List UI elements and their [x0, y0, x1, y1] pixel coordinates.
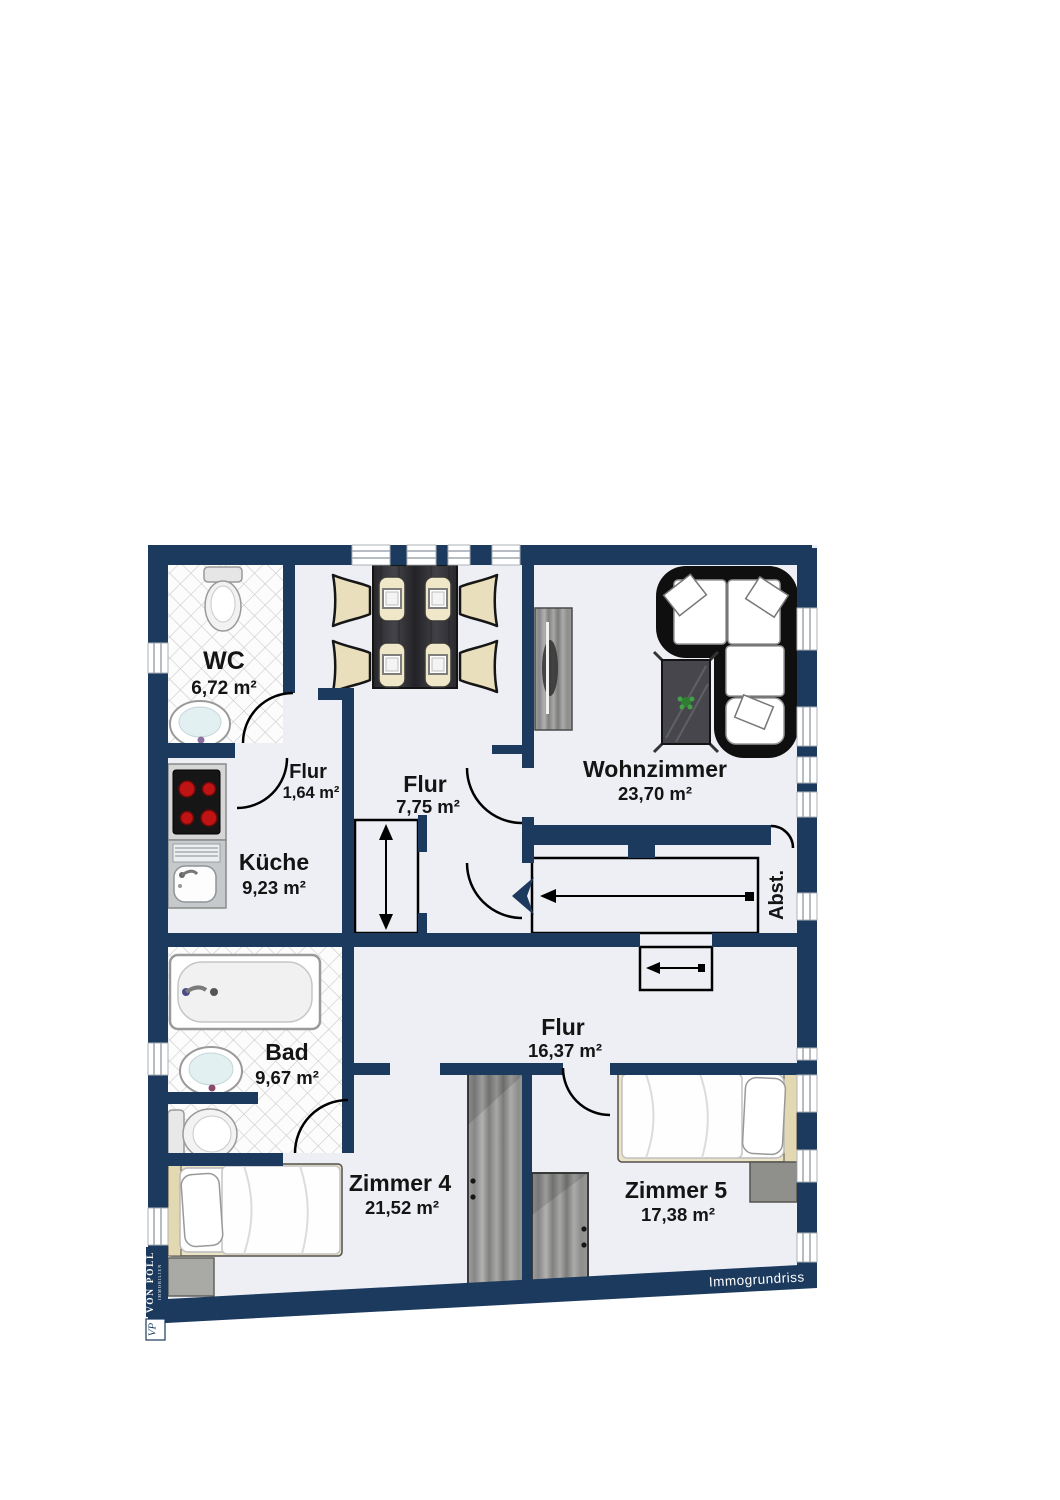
window-right-5 — [797, 1048, 817, 1060]
kitchen-stove — [168, 764, 226, 840]
floorplan-page: WC 6,72 m² Flur 1,64 m² Flur 7,75 m² Woh… — [0, 0, 1060, 1500]
stairs-lower-steps — [640, 947, 712, 990]
svg-text:Abst.: Abst. — [766, 870, 788, 920]
svg-text:1,64 m²: 1,64 m² — [283, 784, 340, 802]
svg-text:7,75 m²: 7,75 m² — [396, 796, 460, 817]
svg-text:Flur: Flur — [541, 1014, 584, 1040]
stairs-upper — [355, 820, 418, 933]
window-top-3 — [448, 545, 470, 565]
coffee-table — [654, 652, 718, 752]
wc-toilet — [204, 567, 242, 631]
kitchen-sink-unit — [168, 840, 226, 908]
window-left-wc — [148, 643, 168, 673]
window-right-7 — [797, 1150, 817, 1182]
window-right-3 — [797, 757, 817, 783]
svg-text:Wohnzimmer: Wohnzimmer — [583, 756, 727, 782]
zimmer5-nightstand — [750, 1162, 797, 1202]
room-label-zimmer4: Zimmer 4 21,52 m² — [349, 1170, 451, 1218]
svg-text:6,72 m²: 6,72 m² — [191, 678, 256, 699]
floorplan-svg: WC 6,72 m² Flur 1,64 m² Flur 7,75 m² Woh… — [0, 0, 1060, 1500]
room-label-abstellraum: Abst. — [766, 870, 788, 920]
window-right-1 — [797, 608, 817, 650]
svg-text:23,70 m²: 23,70 m² — [618, 783, 692, 804]
zimmer4-bed — [168, 1164, 342, 1256]
vonpoll-monogram: VP — [147, 1323, 159, 1337]
bad-sink — [180, 1047, 242, 1095]
window-left-bad — [148, 1043, 168, 1075]
svg-text:17,38 m²: 17,38 m² — [641, 1204, 715, 1225]
room-label-kueche: Küche 9,23 m² — [239, 849, 309, 898]
zimmer5-bed — [618, 1070, 797, 1162]
window-right-6 — [797, 1075, 817, 1112]
svg-text:Bad: Bad — [265, 1039, 308, 1065]
svg-text:9,67 m²: 9,67 m² — [255, 1067, 319, 1088]
window-right-2 — [797, 707, 817, 746]
vonpoll-logo: VON POLL IMMOBILIEN VP — [146, 1247, 165, 1340]
tv-sideboard — [535, 608, 572, 730]
window-top-1 — [352, 545, 390, 565]
window-top-2 — [407, 545, 436, 565]
bad-toilet — [168, 1109, 237, 1159]
vonpoll-logo-sub: IMMOBILIEN — [157, 1264, 162, 1301]
svg-text:Flur: Flur — [289, 761, 327, 783]
svg-text:Zimmer 5: Zimmer 5 — [625, 1177, 727, 1203]
svg-text:9,23 m²: 9,23 m² — [242, 877, 306, 898]
zimmer4-wardrobe — [468, 1073, 525, 1297]
svg-text:21,52 m²: 21,52 m² — [365, 1197, 439, 1218]
wc-sink — [170, 701, 230, 747]
window-right-abst — [797, 893, 817, 920]
svg-text:Küche: Küche — [239, 849, 309, 875]
vonpoll-logo-name: VON POLL — [146, 1251, 156, 1313]
room-label-zimmer5: Zimmer 5 17,38 m² — [625, 1177, 727, 1225]
svg-text:WC: WC — [203, 647, 245, 675]
window-left-zimmer4 — [148, 1208, 168, 1245]
zimmer5-wardrobe — [532, 1173, 588, 1293]
svg-text:Flur: Flur — [403, 771, 446, 797]
zimmer4-nightstand — [168, 1258, 214, 1296]
window-right-8 — [797, 1233, 817, 1262]
window-top-4 — [492, 545, 520, 565]
stairs-main-run — [532, 858, 758, 933]
svg-text:Zimmer 4: Zimmer 4 — [349, 1170, 451, 1196]
window-right-4 — [797, 792, 817, 817]
svg-text:16,37 m²: 16,37 m² — [528, 1040, 602, 1061]
bathtub — [170, 955, 320, 1029]
